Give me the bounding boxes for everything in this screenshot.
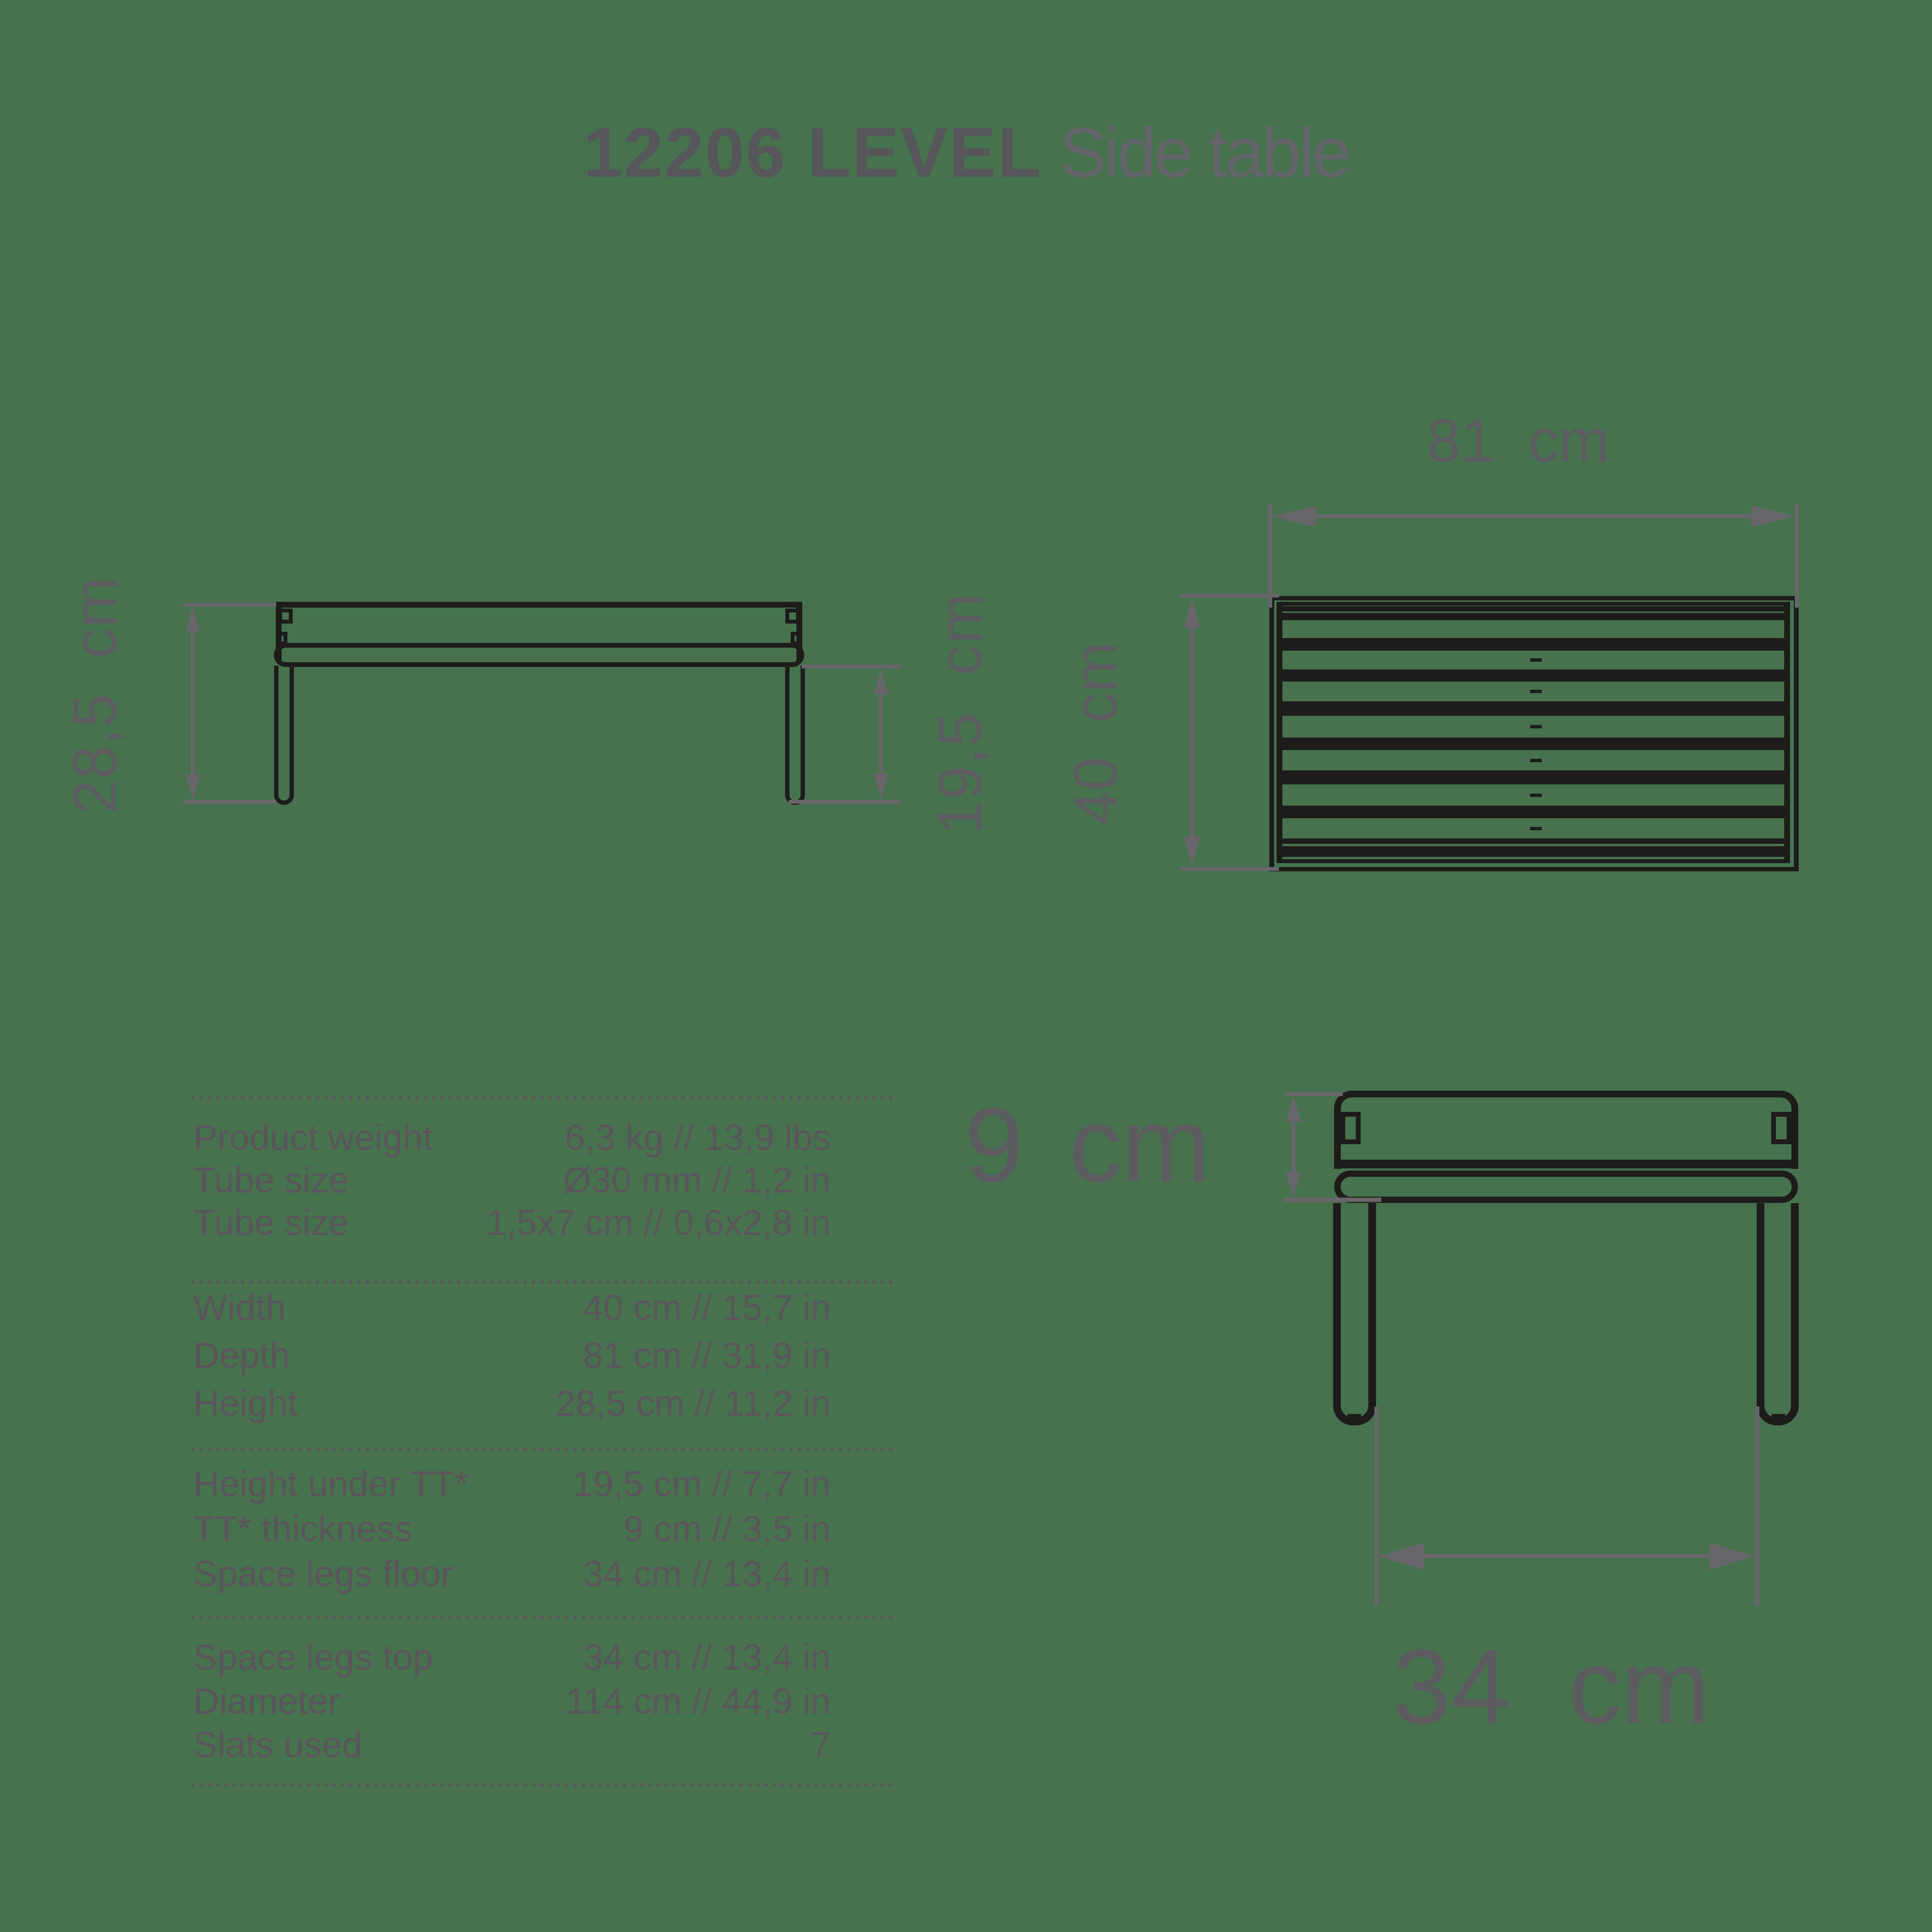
svg-text:Tube size: Tube size <box>193 1160 349 1200</box>
svg-text:cm: cm <box>1568 1627 1710 1746</box>
svg-text:7: 7 <box>810 1724 831 1765</box>
svg-text:Diameter: Diameter <box>193 1681 340 1721</box>
svg-text:cm: cm <box>1069 1085 1210 1204</box>
svg-text:34 cm // 13,4 in: 34 cm // 13,4 in <box>583 1637 831 1677</box>
svg-text:Ø30 mm // 1,2 in: Ø30 mm // 1,2 in <box>563 1160 831 1200</box>
svg-text:Height under TT*: Height under TT* <box>193 1463 469 1504</box>
svg-text:TT* thickness: TT* thickness <box>193 1508 412 1549</box>
svg-text:12206 LEVEL Side table: 12206 LEVEL Side table <box>583 113 1349 192</box>
svg-text:34 cm // 13,4 in: 34 cm // 13,4 in <box>583 1553 831 1594</box>
svg-text:Depth: Depth <box>193 1335 290 1376</box>
svg-text:Product weight: Product weight <box>193 1117 433 1158</box>
svg-text:Height: Height <box>193 1383 298 1423</box>
svg-text:114 cm // 44,9 in: 114 cm // 44,9 in <box>566 1681 831 1721</box>
svg-text:28,5 cm: 28,5 cm <box>61 576 129 813</box>
svg-text:28,5 cm // 11,2 in: 28,5 cm // 11,2 in <box>555 1383 831 1423</box>
svg-text:1,5x7 cm // 0,6x2,8 in: 1,5x7 cm // 0,6x2,8 in <box>486 1202 831 1243</box>
svg-text:Width: Width <box>193 1287 286 1328</box>
svg-text:Slats used: Slats used <box>193 1724 362 1765</box>
svg-text:9 cm // 3,5 in: 9 cm // 3,5 in <box>624 1508 831 1549</box>
svg-text:81 cm // 31,9 in: 81 cm // 31,9 in <box>583 1335 831 1376</box>
svg-text:Space legs floor: Space legs floor <box>193 1553 453 1594</box>
svg-text:40 cm // 15,7 in: 40 cm // 15,7 in <box>583 1287 831 1328</box>
svg-text:9: 9 <box>965 1085 1023 1204</box>
svg-text:Tube size: Tube size <box>193 1202 349 1243</box>
svg-text:Space legs top: Space legs top <box>193 1637 433 1677</box>
svg-text:81 cm: 81 cm <box>1427 407 1609 475</box>
svg-text:19,5 cm // 7,7 in: 19,5 cm // 7,7 in <box>573 1463 831 1504</box>
svg-text:34: 34 <box>1392 1627 1510 1746</box>
svg-text:40 cm: 40 cm <box>1062 642 1130 824</box>
svg-text:19,5 cm: 19,5 cm <box>926 592 994 835</box>
svg-text:6,3 kg // 13,9 lbs: 6,3 kg // 13,9 lbs <box>565 1117 831 1158</box>
